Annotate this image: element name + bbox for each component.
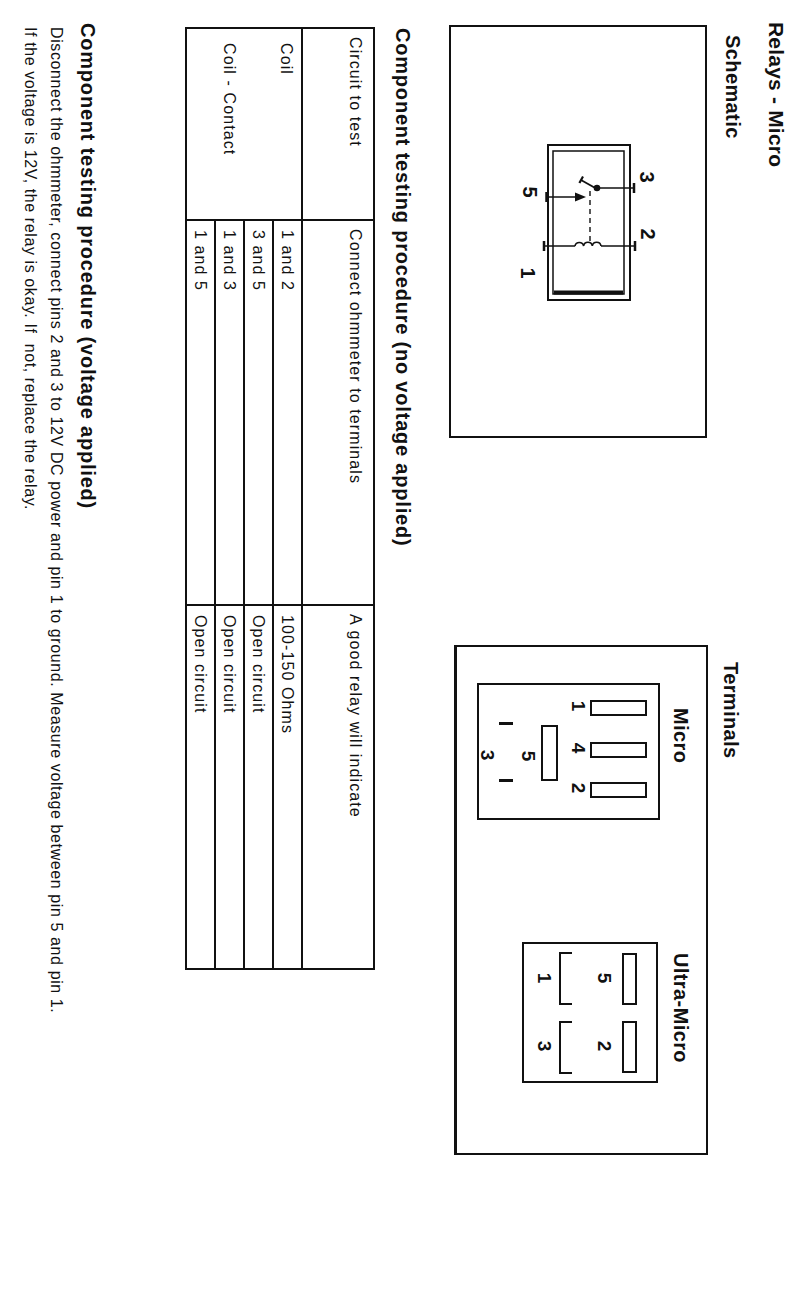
ultra-micro-slot5-label: 5: [595, 966, 614, 990]
ultra-micro-bracket-3: [559, 1021, 572, 1074]
page-title: Relays - Micro: [764, 22, 788, 167]
cell-terminals: 1 and 5: [186, 220, 215, 605]
micro-pin3-dash-left: [499, 722, 513, 725]
schematic-pin1-label: 1: [518, 263, 538, 283]
ultra-micro-label: Ultra-Micro: [669, 953, 692, 1063]
testing-table: Circuit to test Connect ohmmeter to term…: [185, 27, 375, 970]
ultra-micro-bracket1-label: 1: [535, 966, 554, 990]
micro-pin3-label: 3: [478, 743, 497, 767]
micro-blade-1: [590, 700, 647, 716]
cell-indication: Open circuit: [215, 605, 244, 969]
micro-blade4-label: 4: [569, 736, 588, 760]
cell-terminals: 1 and 2: [273, 220, 302, 605]
cell-indication: Open circuit: [244, 605, 273, 969]
micro-label: Micro: [669, 708, 692, 763]
procedure-paragraph-line1: Disconnect the ohmmeter, connect pins 2 …: [43, 27, 69, 1013]
micro-slot-5: [541, 725, 558, 781]
relay-outline-outer: [548, 145, 630, 300]
ultra-micro-bracket-1: [559, 952, 572, 1005]
schematic-pin3-label: 3: [637, 167, 657, 187]
group-coil-contact: Coil - Contact: [220, 43, 238, 155]
header-indicate: A good relay will indicate: [302, 605, 374, 969]
schematic-heading: Schematic: [721, 35, 744, 139]
manual-page: Relays - Micro Schematic Terminals 3 2 5…: [0, 0, 798, 1294]
procedure-voltage-heading: Component testing procedure (voltage app…: [76, 23, 99, 509]
relay-outline-inner: [553, 151, 624, 294]
cell-terminals: 3 and 5: [244, 220, 273, 605]
ultra-micro-slot-2: [622, 1021, 637, 1073]
schematic-pin2-label: 2: [638, 224, 658, 244]
table-header-row: Circuit to test Connect ohmmeter to term…: [302, 28, 374, 969]
ultra-micro-bracket3-label: 3: [535, 1034, 554, 1058]
ultra-micro-connector-box: [522, 942, 658, 1083]
ultra-micro-slot2-label: 2: [595, 1034, 614, 1058]
micro-blade-4: [590, 742, 647, 758]
table-row: Coil Coil - Contact 1 and 2 100-150 Ohms: [273, 28, 302, 969]
schematic-pin5-label: 5: [520, 182, 540, 202]
micro-pin3-dash-right: [499, 779, 513, 782]
circuit-group-cell: Coil Coil - Contact: [186, 28, 302, 220]
micro-blade1-label: 1: [569, 694, 588, 718]
coil-symbol: [575, 242, 601, 246]
armature-end-tick: [579, 177, 583, 184]
ultra-micro-slot-5: [622, 953, 637, 1005]
header-connect: Connect ohmmeter to terminals: [302, 220, 374, 605]
procedure-no-voltage-heading: Component testing procedure (no voltage …: [391, 28, 414, 546]
switch-armature: [581, 180, 597, 189]
cell-terminals: 1 and 3: [215, 220, 244, 605]
micro-blade2-label: 2: [569, 776, 588, 800]
header-circuit: Circuit to test: [302, 28, 374, 220]
terminals-heading: Terminals: [719, 662, 742, 759]
micro-blade-2: [590, 782, 647, 798]
micro-slot5-label: 5: [519, 744, 538, 768]
cell-indication: Open circuit: [186, 605, 215, 969]
procedure-paragraph-line2: If the voltage is 12V, the relay is okay…: [17, 27, 43, 510]
group-coil: Coil: [277, 43, 295, 75]
pin5-arrowhead: [575, 193, 586, 202]
cell-indication: 100-150 Ohms: [273, 605, 302, 969]
